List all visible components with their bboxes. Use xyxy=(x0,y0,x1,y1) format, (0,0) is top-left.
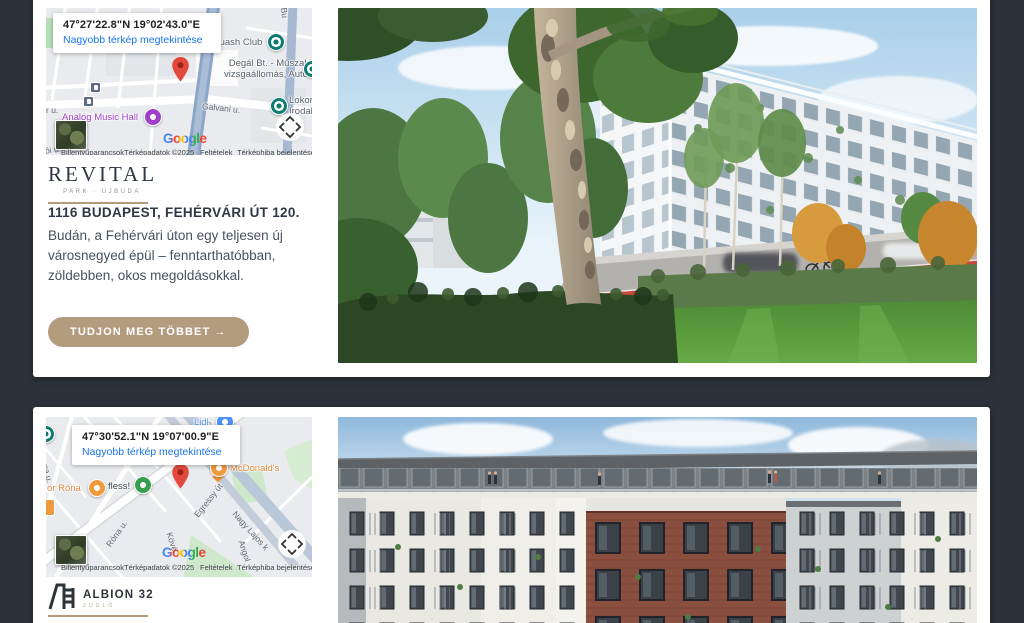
expand-icon[interactable] xyxy=(275,112,305,142)
terms-link[interactable]: Feltételek xyxy=(200,563,233,572)
map-data-label: Térképadatok ©2025 xyxy=(124,148,194,155)
property-photo-albion xyxy=(338,417,977,623)
poi-icon-sports[interactable] xyxy=(267,33,285,51)
street-label: r u. xyxy=(46,105,58,115)
brand-logo-albion: ALBION 32 ZUGLÓ xyxy=(48,583,154,610)
property-photo-revital xyxy=(338,8,977,363)
satellite-layer-toggle[interactable] xyxy=(55,120,87,150)
transit-stop-icon[interactable] xyxy=(83,96,94,107)
poi-icon-fless[interactable] xyxy=(134,476,152,494)
brand-tagline: ZUGLÓ xyxy=(83,603,154,609)
google-logo[interactable]: Google xyxy=(162,545,206,560)
transit-stop-icon[interactable] xyxy=(90,82,101,93)
keyboard-shortcuts-link[interactable]: Billentyűparancsok xyxy=(61,563,124,572)
divider xyxy=(48,202,148,204)
larger-map-link[interactable]: Nagyobb térkép megtekintése xyxy=(82,446,230,458)
page: 47°27'22.8"N 19°02'43.0"E Nagyobb térkép… xyxy=(0,0,1024,623)
poi-label-degal[interactable]: Degál Bt. - Műszakivizsgaállomás, Autó..… xyxy=(224,58,312,80)
google-map-albion[interactable]: 47°30'52.1"N 19°07'00.9"E Nagyobb térkép… xyxy=(46,417,312,577)
map-info-window: 47°27'22.8"N 19°02'43.0"E Nagyobb térkép… xyxy=(53,13,221,53)
brand-name: REVITAL xyxy=(48,162,157,187)
map-coordinates: 47°30'52.1"N 19°07'00.9"E xyxy=(82,431,230,443)
poi-label-rona[interactable]: or Róna xyxy=(47,483,81,494)
project-description: Budán, a Fehérvári úton egy teljesen új … xyxy=(48,226,320,286)
brand-tagline: PARK · ÚJBUDA xyxy=(48,189,156,195)
learn-more-button[interactable]: TUDJON MEG TÖBBET → xyxy=(48,317,249,347)
brand-name: ALBION 32 xyxy=(83,589,154,601)
poi-icon-music-venue[interactable] xyxy=(144,108,162,126)
expand-icon[interactable] xyxy=(277,529,307,559)
project-address: 1116 BUDAPEST, FEHÉRVÁRI ÚT 120. xyxy=(48,205,300,220)
albion-mark-icon xyxy=(48,583,75,610)
keyboard-shortcuts-link[interactable]: Billentyűparancsok xyxy=(61,148,124,155)
project-card-revital: 47°27'22.8"N 19°02'43.0"E Nagyobb térkép… xyxy=(33,0,990,377)
google-logo[interactable]: Google xyxy=(163,131,207,146)
map-pin-icon xyxy=(172,464,189,489)
map-pin-icon xyxy=(172,57,189,82)
report-map-error-link[interactable]: Térképhiba bejelentése xyxy=(237,148,312,155)
satellite-layer-toggle[interactable] xyxy=(55,535,87,565)
project-card-albion: 47°30'52.1"N 19°07'00.9"E Nagyobb térkép… xyxy=(33,407,990,623)
report-map-error-link[interactable]: Térképhiba bejelentése xyxy=(237,563,312,572)
brand-logo-revital: REVITAL PARK · ÚJBUDA xyxy=(48,162,157,195)
larger-map-link[interactable]: Nagyobb térkép megtekintése xyxy=(63,34,211,46)
divider xyxy=(48,615,148,617)
poi-label-fless[interactable]: fless! xyxy=(108,481,130,492)
route-shield-icon xyxy=(46,499,55,516)
google-map-revital[interactable]: 47°27'22.8"N 19°02'43.0"E Nagyobb térkép… xyxy=(46,8,312,155)
poi-icon-restaurant[interactable] xyxy=(88,479,106,497)
street-label: Bu xyxy=(279,8,290,18)
map-data-label: Térképadatok ©2025 xyxy=(124,563,194,572)
map-info-window: 47°30'52.1"N 19°07'00.9"E Nagyobb térkép… xyxy=(72,425,240,465)
terms-link[interactable]: Feltételek xyxy=(200,148,233,155)
map-coordinates: 47°27'22.8"N 19°02'43.0"E xyxy=(63,19,211,31)
